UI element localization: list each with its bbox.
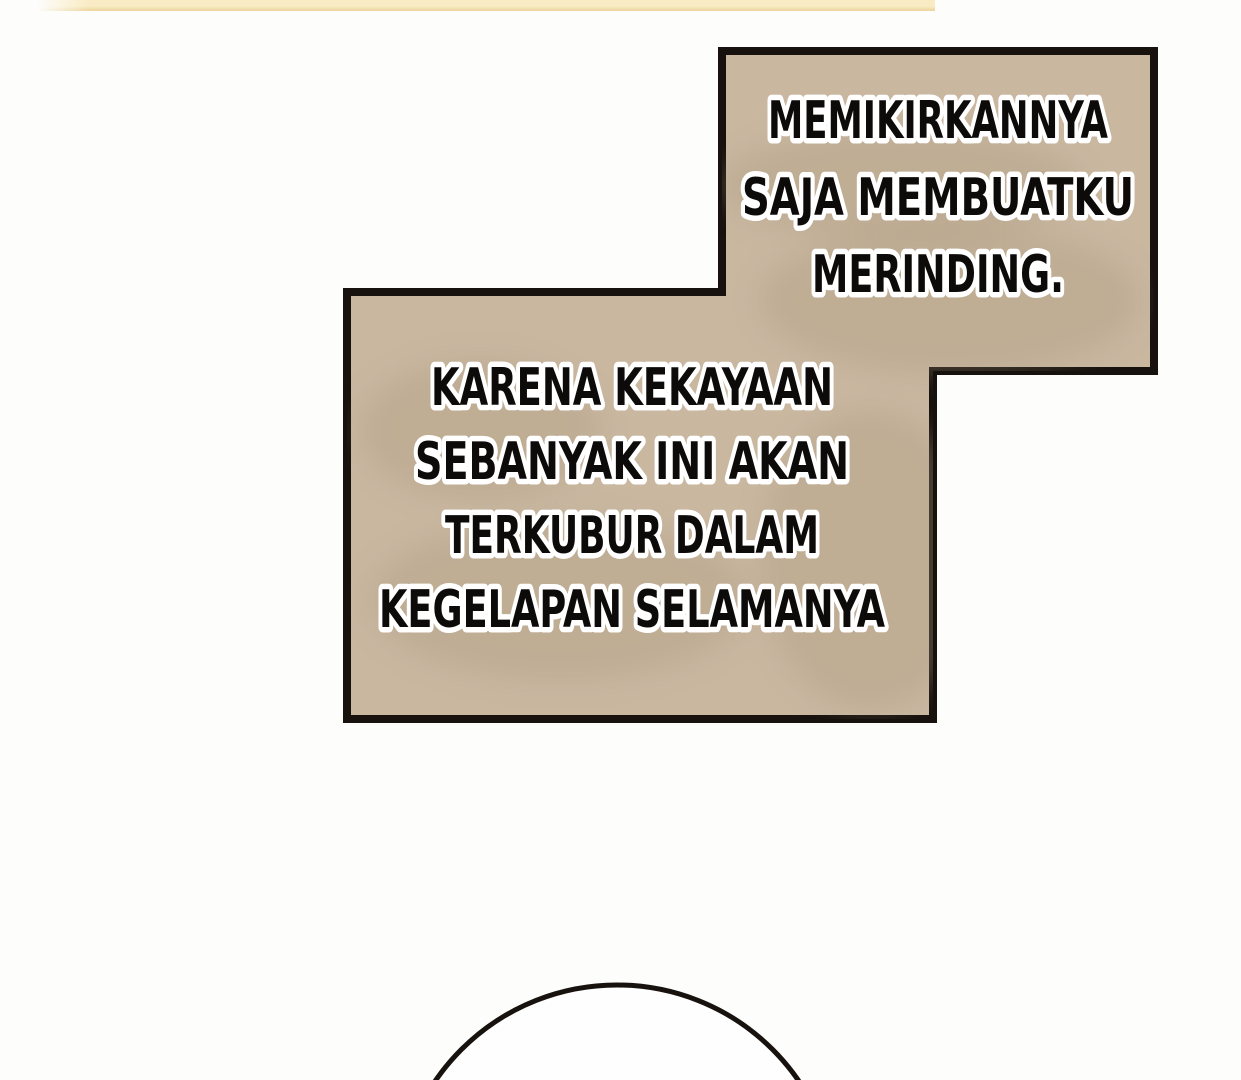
caption-line: SEBANYAK INI AKAN [415, 432, 849, 492]
caption-line: TERKUBUR DALAM [445, 506, 819, 566]
caption-line: MERINDING. [812, 245, 1064, 305]
caption-line: MEMIKIRKANNYA [768, 91, 1108, 151]
caption-line: KEGELAPAN SELAMANYA [379, 580, 885, 640]
comic-artwork: MEMIKIRKANNYA SAJA MEMBUATKU MERINDING. … [0, 0, 1241, 1080]
comic-page: MEMIKIRKANNYA SAJA MEMBUATKU MERINDING. … [0, 0, 1241, 1080]
caption-line: SAJA MEMBUATKU [742, 168, 1134, 228]
caption-line: KARENA KEKAYAAN [431, 358, 833, 418]
character-head-outline [397, 985, 837, 1080]
